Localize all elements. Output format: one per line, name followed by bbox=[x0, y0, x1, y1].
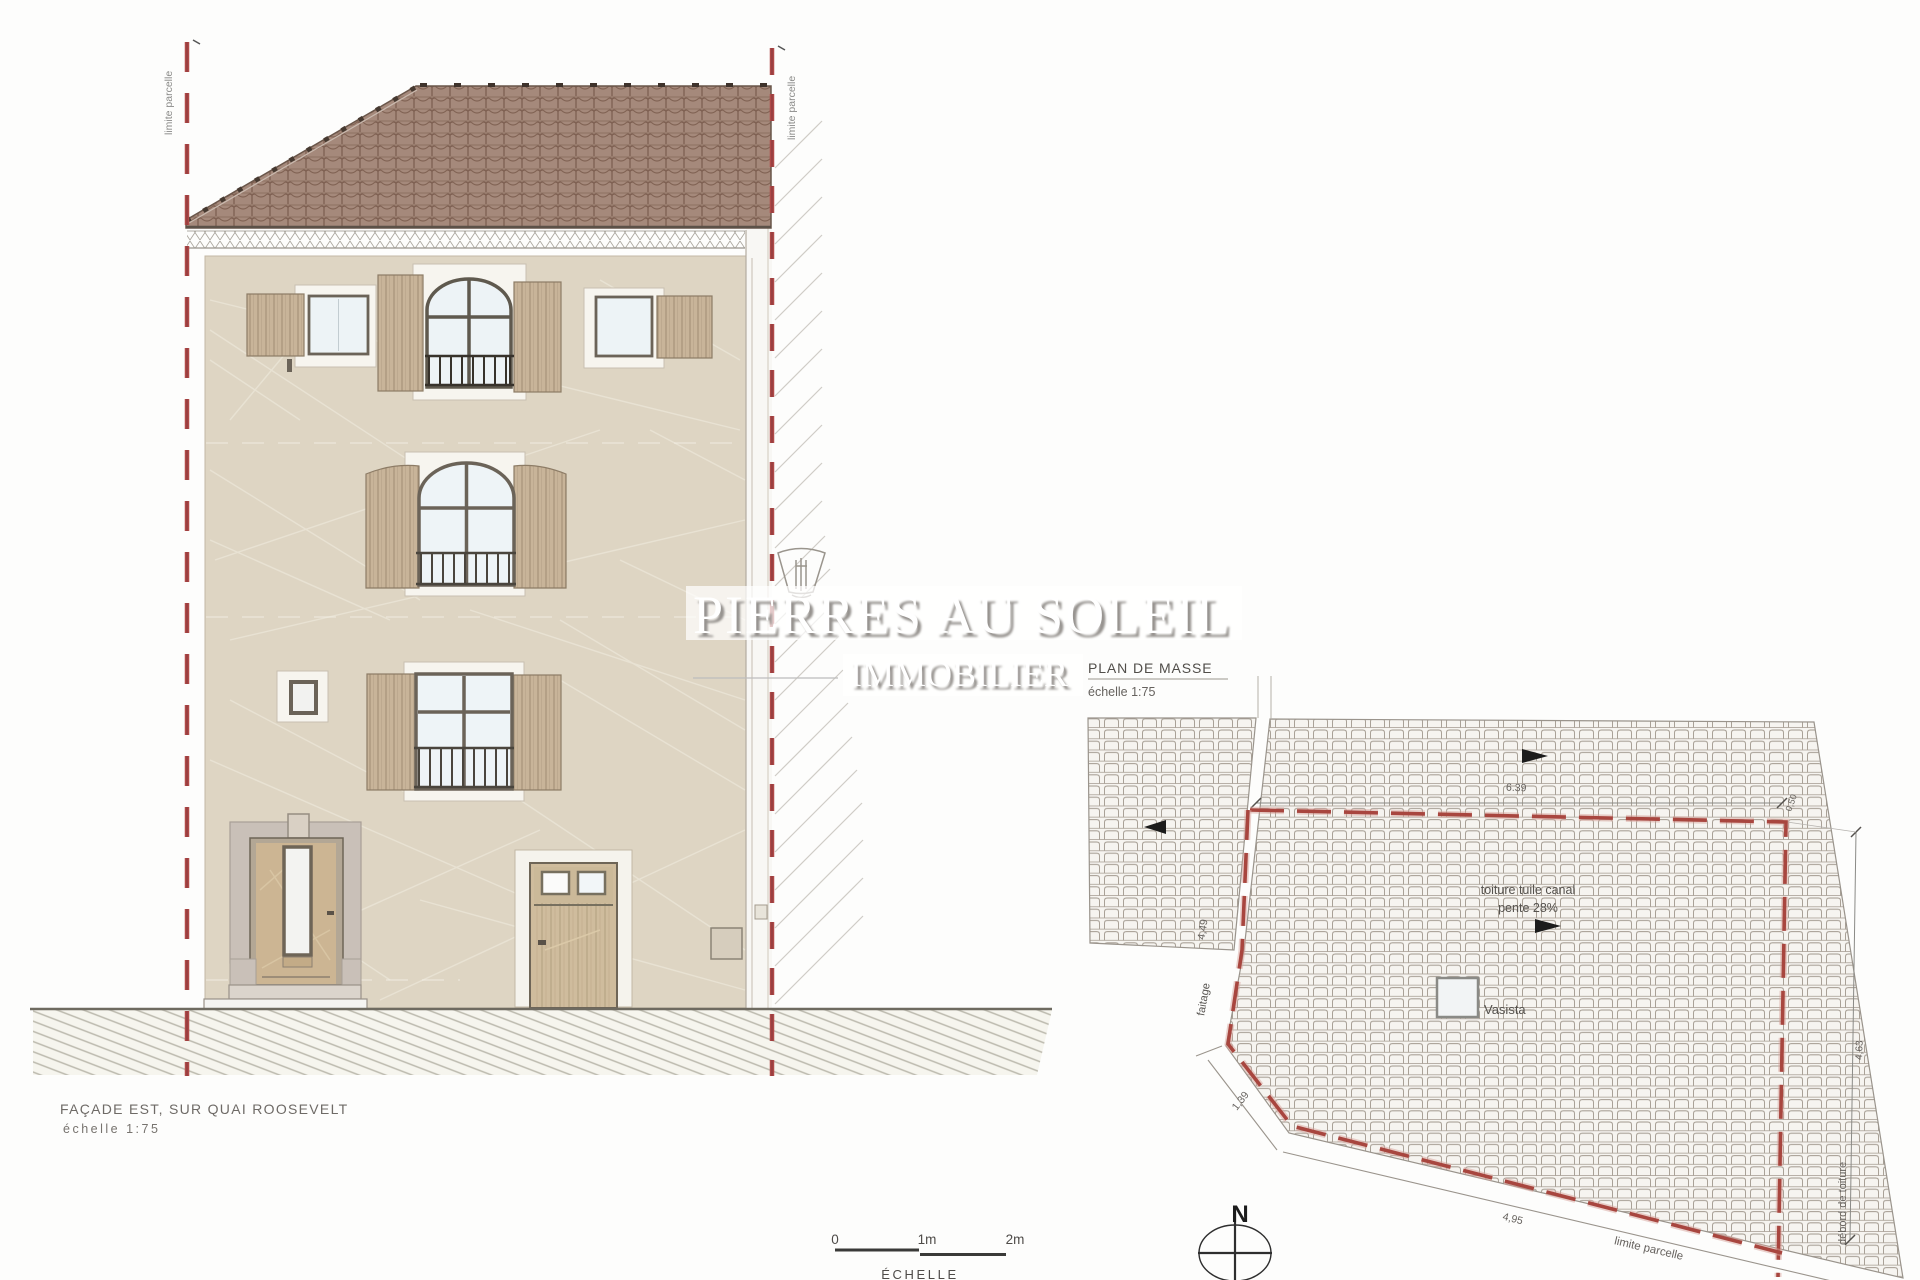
svg-text:1m: 1m bbox=[918, 1232, 937, 1247]
svg-text:limite parcelle: limite parcelle bbox=[163, 71, 175, 135]
svg-text:pente 28%: pente 28% bbox=[1498, 901, 1558, 915]
svg-text:limite parcelle: limite parcelle bbox=[786, 76, 798, 140]
svg-text:0: 0 bbox=[831, 1232, 839, 1247]
svg-text:PIERRES AU SOLEIL: PIERRES AU SOLEIL bbox=[693, 585, 1231, 645]
svg-text:IMMOBILIER: IMMOBILIER bbox=[850, 654, 1068, 694]
svg-text:6.39: 6.39 bbox=[1506, 782, 1527, 795]
svg-text:échelle 1:75: échelle 1:75 bbox=[63, 1122, 160, 1136]
svg-text:ÉCHELLE: ÉCHELLE bbox=[881, 1267, 958, 1280]
svg-text:toiture tuile canal: toiture tuile canal bbox=[1481, 883, 1576, 897]
svg-text:N: N bbox=[1231, 1201, 1248, 1228]
svg-text:débord de toiture: débord de toiture bbox=[1837, 1162, 1849, 1245]
svg-text:échelle 1:75: échelle 1:75 bbox=[1088, 685, 1155, 699]
svg-text:2m: 2m bbox=[1006, 1232, 1025, 1247]
svg-text:4,63: 4,63 bbox=[1854, 1040, 1866, 1060]
svg-text:FAÇADE EST, SUR QUAI ROOSEVELT: FAÇADE EST, SUR QUAI ROOSEVELT bbox=[60, 1101, 348, 1117]
svg-text:PLAN DE MASSE: PLAN DE MASSE bbox=[1088, 660, 1213, 676]
svg-text:Vasista: Vasista bbox=[1484, 1002, 1526, 1017]
